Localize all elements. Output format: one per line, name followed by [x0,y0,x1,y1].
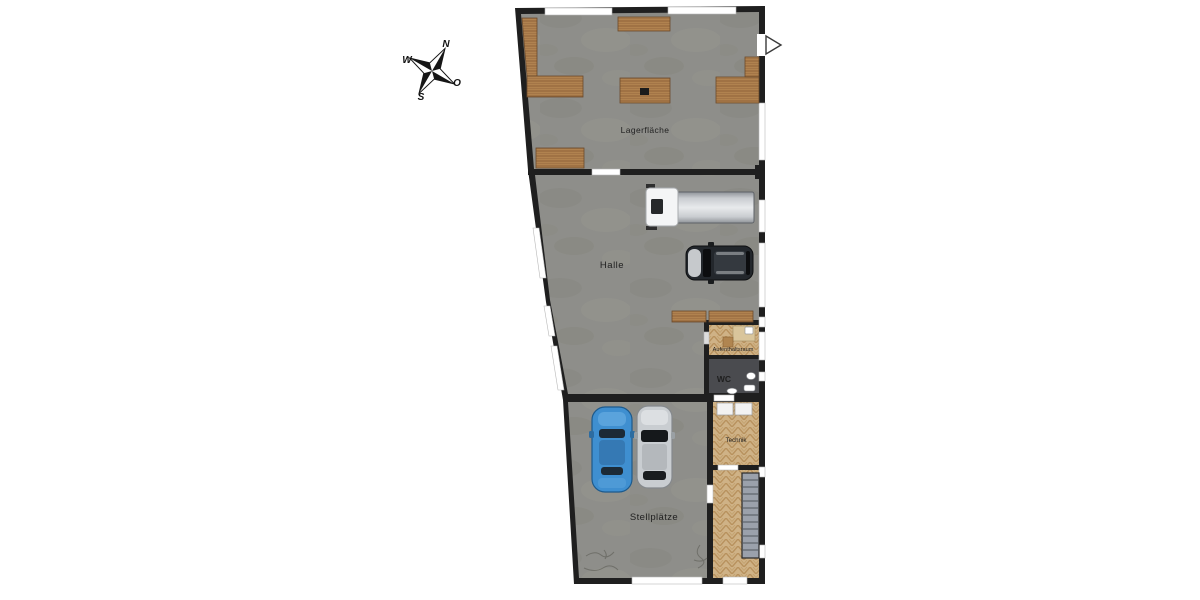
truck-mirror-top [646,184,655,188]
label-lagerflaeche: Lagerfläche [621,125,670,135]
truck-mirror-bottom [646,226,657,230]
shelf-bottom-left [536,148,584,168]
label-technik: Technik [726,437,748,444]
kitchen-sink [745,327,753,334]
silver-car-roof [642,444,667,470]
shelf-right-horizontal [716,77,759,103]
compass-o: O [453,78,461,89]
silver-car-hood [641,410,668,425]
toilet-1 [747,373,756,380]
blue-car [589,407,635,492]
label-halle: Halle [600,260,624,271]
silver-car-rear-window [643,471,666,480]
label-aufenthaltsraum: Aufenthaltsraum [713,347,754,353]
silver-car-windshield [641,430,668,442]
crate-on-shelf [640,88,649,95]
floor-plan-page: Lagerfläche Halle Aufenthaltsraum WC Tec… [0,0,1200,600]
label-wc: WC [717,374,731,384]
silver-car [634,406,675,488]
compass-rose-icon: N W O S [396,35,467,106]
exit-door-arrow-icon [757,34,781,56]
shelf-top-center [618,17,670,31]
blue-car-rear-window [601,467,623,475]
dark-car-rear-window [746,251,750,275]
workbench-halle-1 [672,311,706,322]
small-table [723,337,733,347]
compass-w: W [402,55,413,66]
blue-car-hood [598,412,626,426]
blue-car-roof [599,440,625,465]
blue-car-trunk [598,478,626,488]
truck-windshield [651,199,663,214]
appliance-1 [717,403,733,415]
toilet-2 [727,388,737,394]
dark-car-windshield [703,249,711,277]
dark-car-front [688,249,701,277]
dark-car [686,242,753,284]
truck-trailer [676,192,754,223]
appliance-2 [735,403,752,415]
compass-n: N [442,39,450,50]
compass-s: S [418,92,425,103]
workbench-halle-2 [709,311,753,322]
floor-plan-canvas: Lagerfläche Halle Aufenthaltsraum WC Tec… [0,0,1200,600]
shelf-left-horizontal [527,76,583,97]
staircase [742,473,759,558]
sink [744,385,755,391]
blue-car-windshield [599,429,625,438]
shelf-right-vertical [745,57,759,77]
label-stellplaetze: Stellplätze [630,512,678,523]
